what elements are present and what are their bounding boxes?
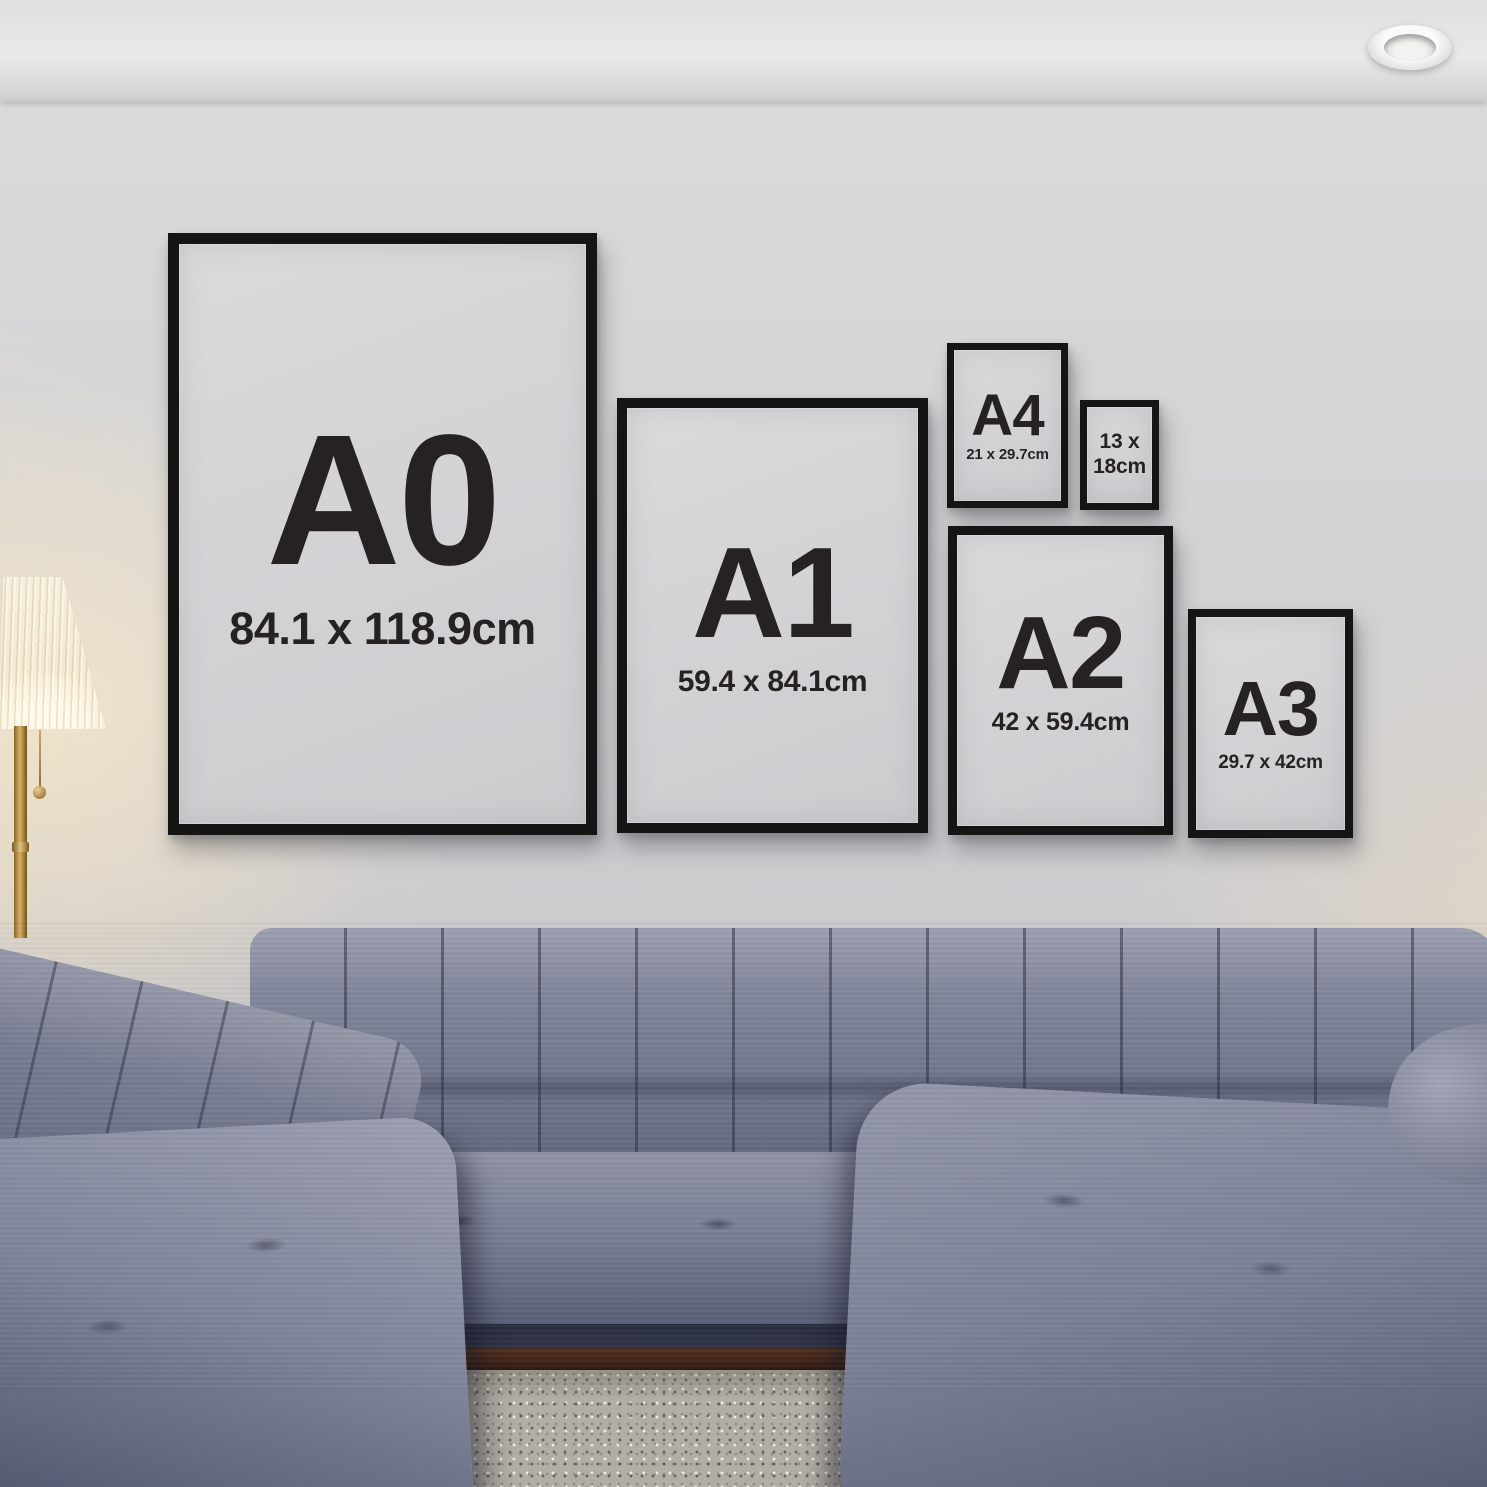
sofa-left-chaise <box>0 1115 476 1487</box>
frame-a4: A4 21 x 29.7cm <box>947 343 1068 508</box>
frame-13x18-poster: 13 x 18cm <box>1087 407 1152 503</box>
frame-a4-size: 21 x 29.7cm <box>966 446 1049 463</box>
frame-a2-content: A2 42 x 59.4cm <box>992 604 1130 737</box>
frame-a3-label: A3 <box>1222 673 1318 746</box>
frame-a1: A1 59.4 x 84.1cm <box>617 398 928 833</box>
lamp-pole <box>14 726 27 938</box>
frame-a0-poster: A0 84.1 x 118.9cm <box>179 244 586 824</box>
frame-a1-poster: A1 59.4 x 84.1cm <box>627 408 918 823</box>
frame-a3-size: 29.7 x 42cm <box>1218 752 1323 774</box>
lamp-pole-collar <box>12 842 29 852</box>
frame-a1-label: A1 <box>692 532 853 655</box>
frame-a2-poster: A2 42 x 59.4cm <box>957 535 1164 826</box>
recessed-ceiling-light <box>1368 25 1452 70</box>
frame-a3: A3 29.7 x 42cm <box>1188 609 1353 838</box>
frame-a0: A0 84.1 x 118.9cm <box>168 233 597 835</box>
frame-a2: A2 42 x 59.4cm <box>948 526 1173 835</box>
lamp-pull-chain <box>39 730 41 790</box>
frame-13x18-size-line1: 13 x <box>1099 430 1139 455</box>
sofa-right-chaise <box>837 1080 1487 1487</box>
living-room-photo: A0 84.1 x 118.9cm A1 59.4 x 84.1cm A4 21… <box>0 0 1487 1487</box>
ceiling <box>0 0 1487 102</box>
frame-a2-size: 42 x 59.4cm <box>992 708 1130 737</box>
frame-13x18-size-line2: 18cm <box>1093 455 1146 480</box>
frame-a4-label: A4 <box>971 388 1043 443</box>
frame-a1-size: 59.4 x 84.1cm <box>678 665 868 699</box>
frame-a2-label: A2 <box>996 604 1125 702</box>
recessed-light-bulb <box>1384 34 1436 61</box>
frame-13x18: 13 x 18cm <box>1080 400 1159 510</box>
lamp-pull-ball <box>33 786 46 799</box>
frame-a0-size: 84.1 x 118.9cm <box>229 603 535 655</box>
frame-a3-poster: A3 29.7 x 42cm <box>1196 617 1345 830</box>
frame-a0-label: A0 <box>266 413 498 590</box>
frame-a4-poster: A4 21 x 29.7cm <box>954 350 1061 501</box>
